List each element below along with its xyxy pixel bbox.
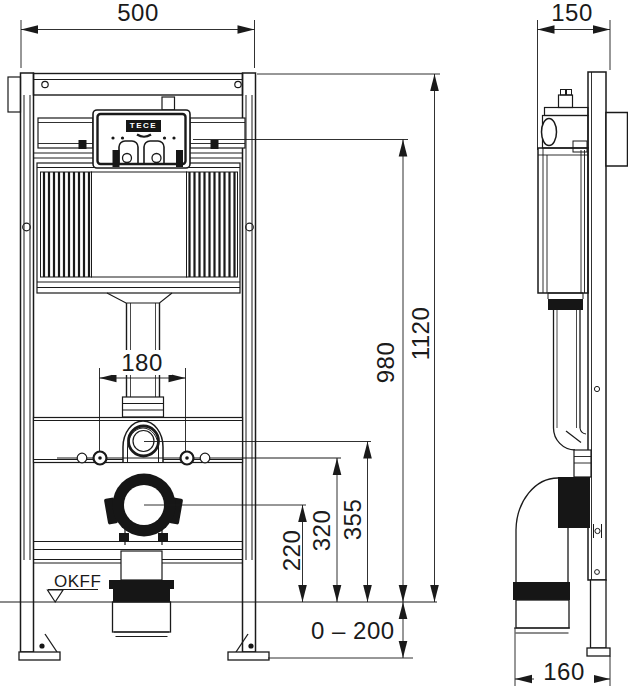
- drain-outlet: [104, 474, 183, 637]
- side-drain: [513, 477, 590, 633]
- dim-label-fixing-height: 320: [309, 496, 334, 566]
- cistern-funnel: [107, 293, 172, 303]
- floor-level-triangle: [48, 590, 64, 602]
- technical-drawing-wc-module: 500 150 180 1120 980 355 320 220 0 – 200…: [0, 0, 628, 690]
- cistern-access-panel: [92, 172, 187, 277]
- foot-plate-right: [228, 652, 269, 660]
- dim-label-front-width: 500: [108, 0, 168, 25]
- actuator-top-tab: [162, 97, 175, 110]
- actuator-unit: [93, 110, 190, 168]
- drain-gasket: [113, 588, 170, 602]
- dim-label-outlet-height: 220: [279, 516, 304, 586]
- brand-logo: TECE: [126, 120, 161, 132]
- cistern-body-side: [538, 148, 588, 293]
- side-flush-pipe: [554, 310, 592, 477]
- side-foot-plate: [587, 648, 610, 656]
- dim-label-feet-adjustment: 0 – 200: [311, 618, 391, 643]
- floor-reference-label: OKFF: [54, 573, 101, 590]
- side-view: [513, 72, 628, 656]
- valve-clamp: [542, 119, 557, 146]
- fixing-crossbar: [34, 418, 342, 465]
- side-cistern: [538, 90, 588, 311]
- top-crossbar: [34, 74, 243, 96]
- dim-500-lines: [21, 20, 255, 68]
- side-drain-socket: [516, 600, 569, 628]
- adjustable-feet: [19, 634, 269, 660]
- dim-label-depth: 150: [542, 0, 602, 25]
- side-foot-tube: [591, 580, 607, 648]
- dim-label-total-height: 1120: [408, 299, 433, 369]
- dim-label-actuator-level: 980: [373, 328, 398, 398]
- pipe-coupling: [123, 397, 164, 417]
- drain-socket: [113, 602, 171, 632]
- cistern-ribs-left: [44, 172, 89, 277]
- screw-hole-right: [235, 81, 241, 87]
- side-rail: [587, 72, 628, 656]
- drain-elbow: [516, 478, 558, 530]
- cistern-ribs-right: [190, 172, 235, 277]
- foot-plate-left: [19, 652, 60, 660]
- cistern: [34, 153, 243, 303]
- actuator-assembly: [38, 97, 245, 168]
- dim-label-outlet-offset: 160: [534, 659, 594, 684]
- wall-drain-connector: [558, 477, 590, 528]
- filler-cap: [559, 95, 573, 108]
- wall-bracket-front: [8, 77, 21, 112]
- screw-hole-left: [42, 81, 48, 87]
- dim-label-bolt-spacing: 180: [112, 350, 172, 375]
- wall-bracket-side: [606, 113, 628, 167]
- dim-label-flush-bend-height: 355: [340, 485, 365, 555]
